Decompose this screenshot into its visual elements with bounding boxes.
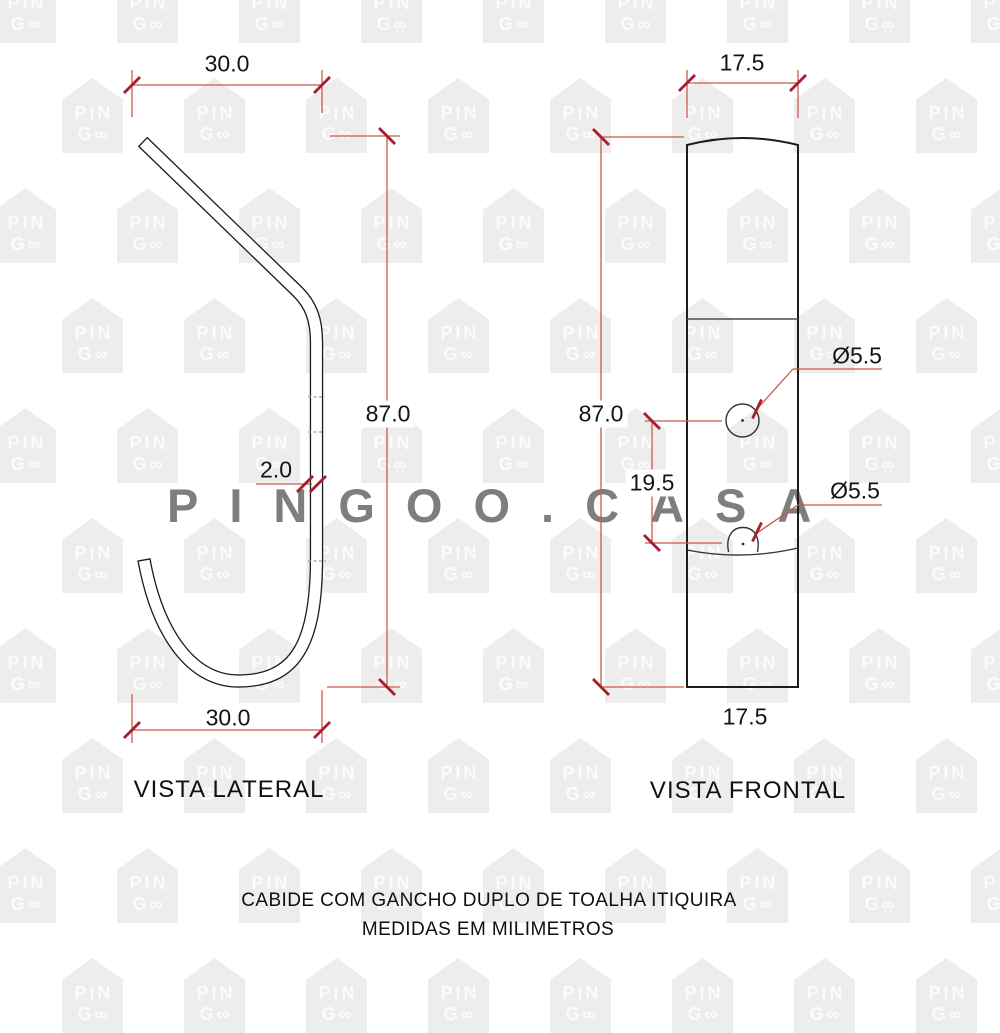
front-lower-hole-diameter: Ø5.5 (830, 478, 880, 505)
front-upper-hole-diameter: Ø5.5 (832, 343, 882, 370)
side-bottom-width-dimension: 30.0 (206, 705, 251, 732)
side-top-width-dimension: 30.0 (205, 51, 250, 78)
front-hole-spacing-dimension: 19.5 (626, 470, 679, 497)
side-view-label: VISTA LATERAL (134, 776, 325, 804)
side-height-dimension: 87.0 (362, 401, 415, 428)
product-title-caption: CABIDE COM GANCHO DUPLO DE TOALHA ITIQUI… (241, 890, 736, 912)
front-bottom-width-dimension: 17.5 (723, 704, 768, 731)
technical-drawing-sheet: PING∞PING∞PING∞PING∞PING∞PING∞PING∞PING∞… (0, 0, 1000, 1000)
side-thickness-dimension: 2.0 (260, 457, 292, 484)
units-note-caption: MEDIDAS EM MILIMETROS (362, 919, 614, 941)
front-view-label: VISTA FRONTAL (650, 777, 846, 805)
front-height-dimension: 87.0 (575, 401, 628, 428)
front-top-width-dimension: 17.5 (720, 50, 765, 77)
